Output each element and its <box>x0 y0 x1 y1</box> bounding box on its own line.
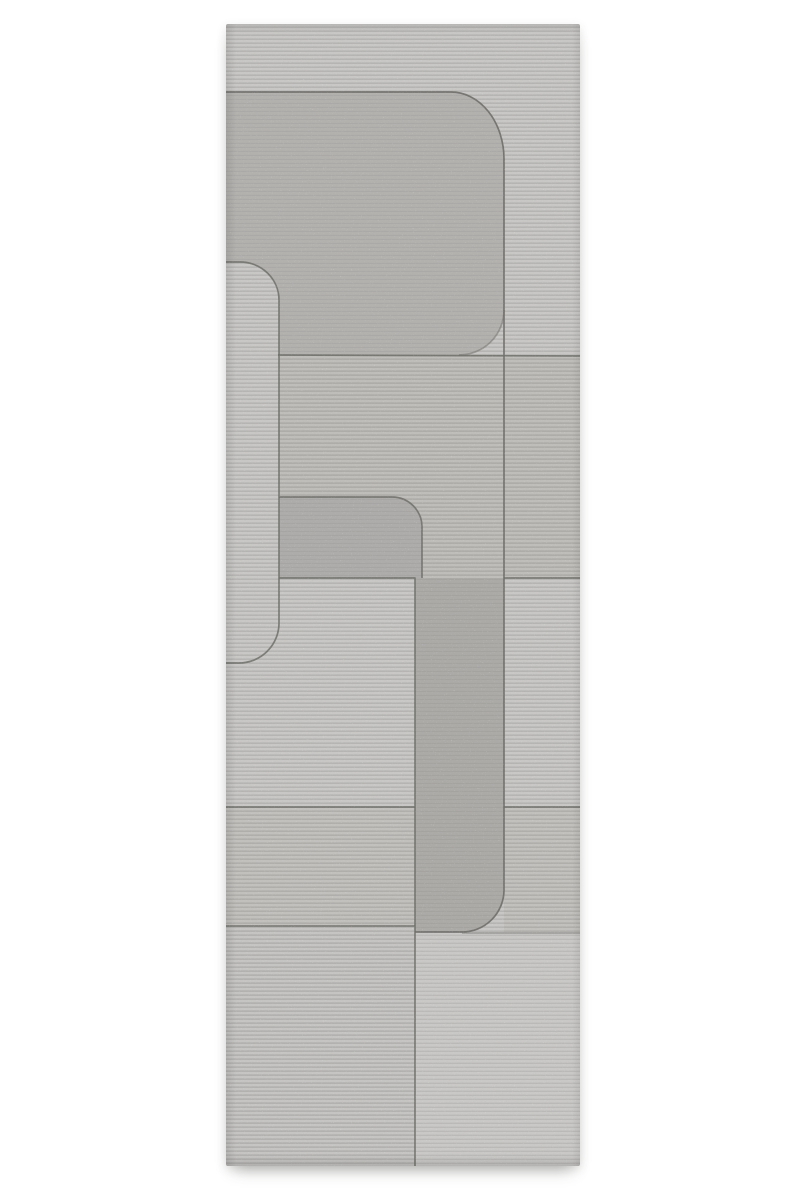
rug <box>226 24 580 1166</box>
wool-grain-light <box>226 24 580 1166</box>
edge-shade-right <box>572 24 580 1166</box>
photo-background: { "scene": { "type": "product-photo", "s… <box>0 0 800 1200</box>
edge-shade-bottom <box>226 1155 580 1166</box>
edge-shade-left <box>226 24 236 1166</box>
edge-shade-top <box>226 24 580 33</box>
product-photo <box>0 0 800 1200</box>
rug-pattern-svg <box>226 24 580 1166</box>
